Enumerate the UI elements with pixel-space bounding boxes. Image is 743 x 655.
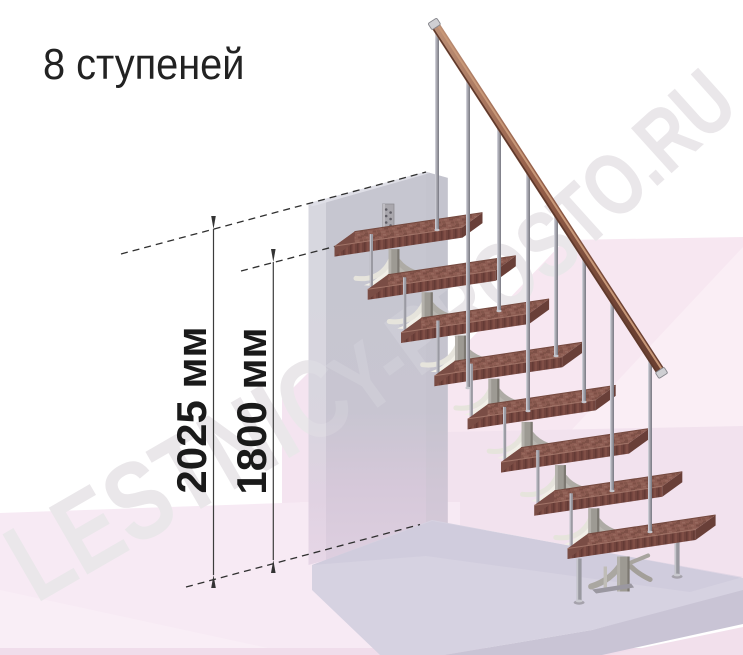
svg-text:1800 мм: 1800 мм	[228, 327, 275, 494]
svg-text:2025 мм: 2025 мм	[168, 326, 215, 493]
svg-text:8 ступеней: 8 ступеней	[43, 41, 245, 89]
